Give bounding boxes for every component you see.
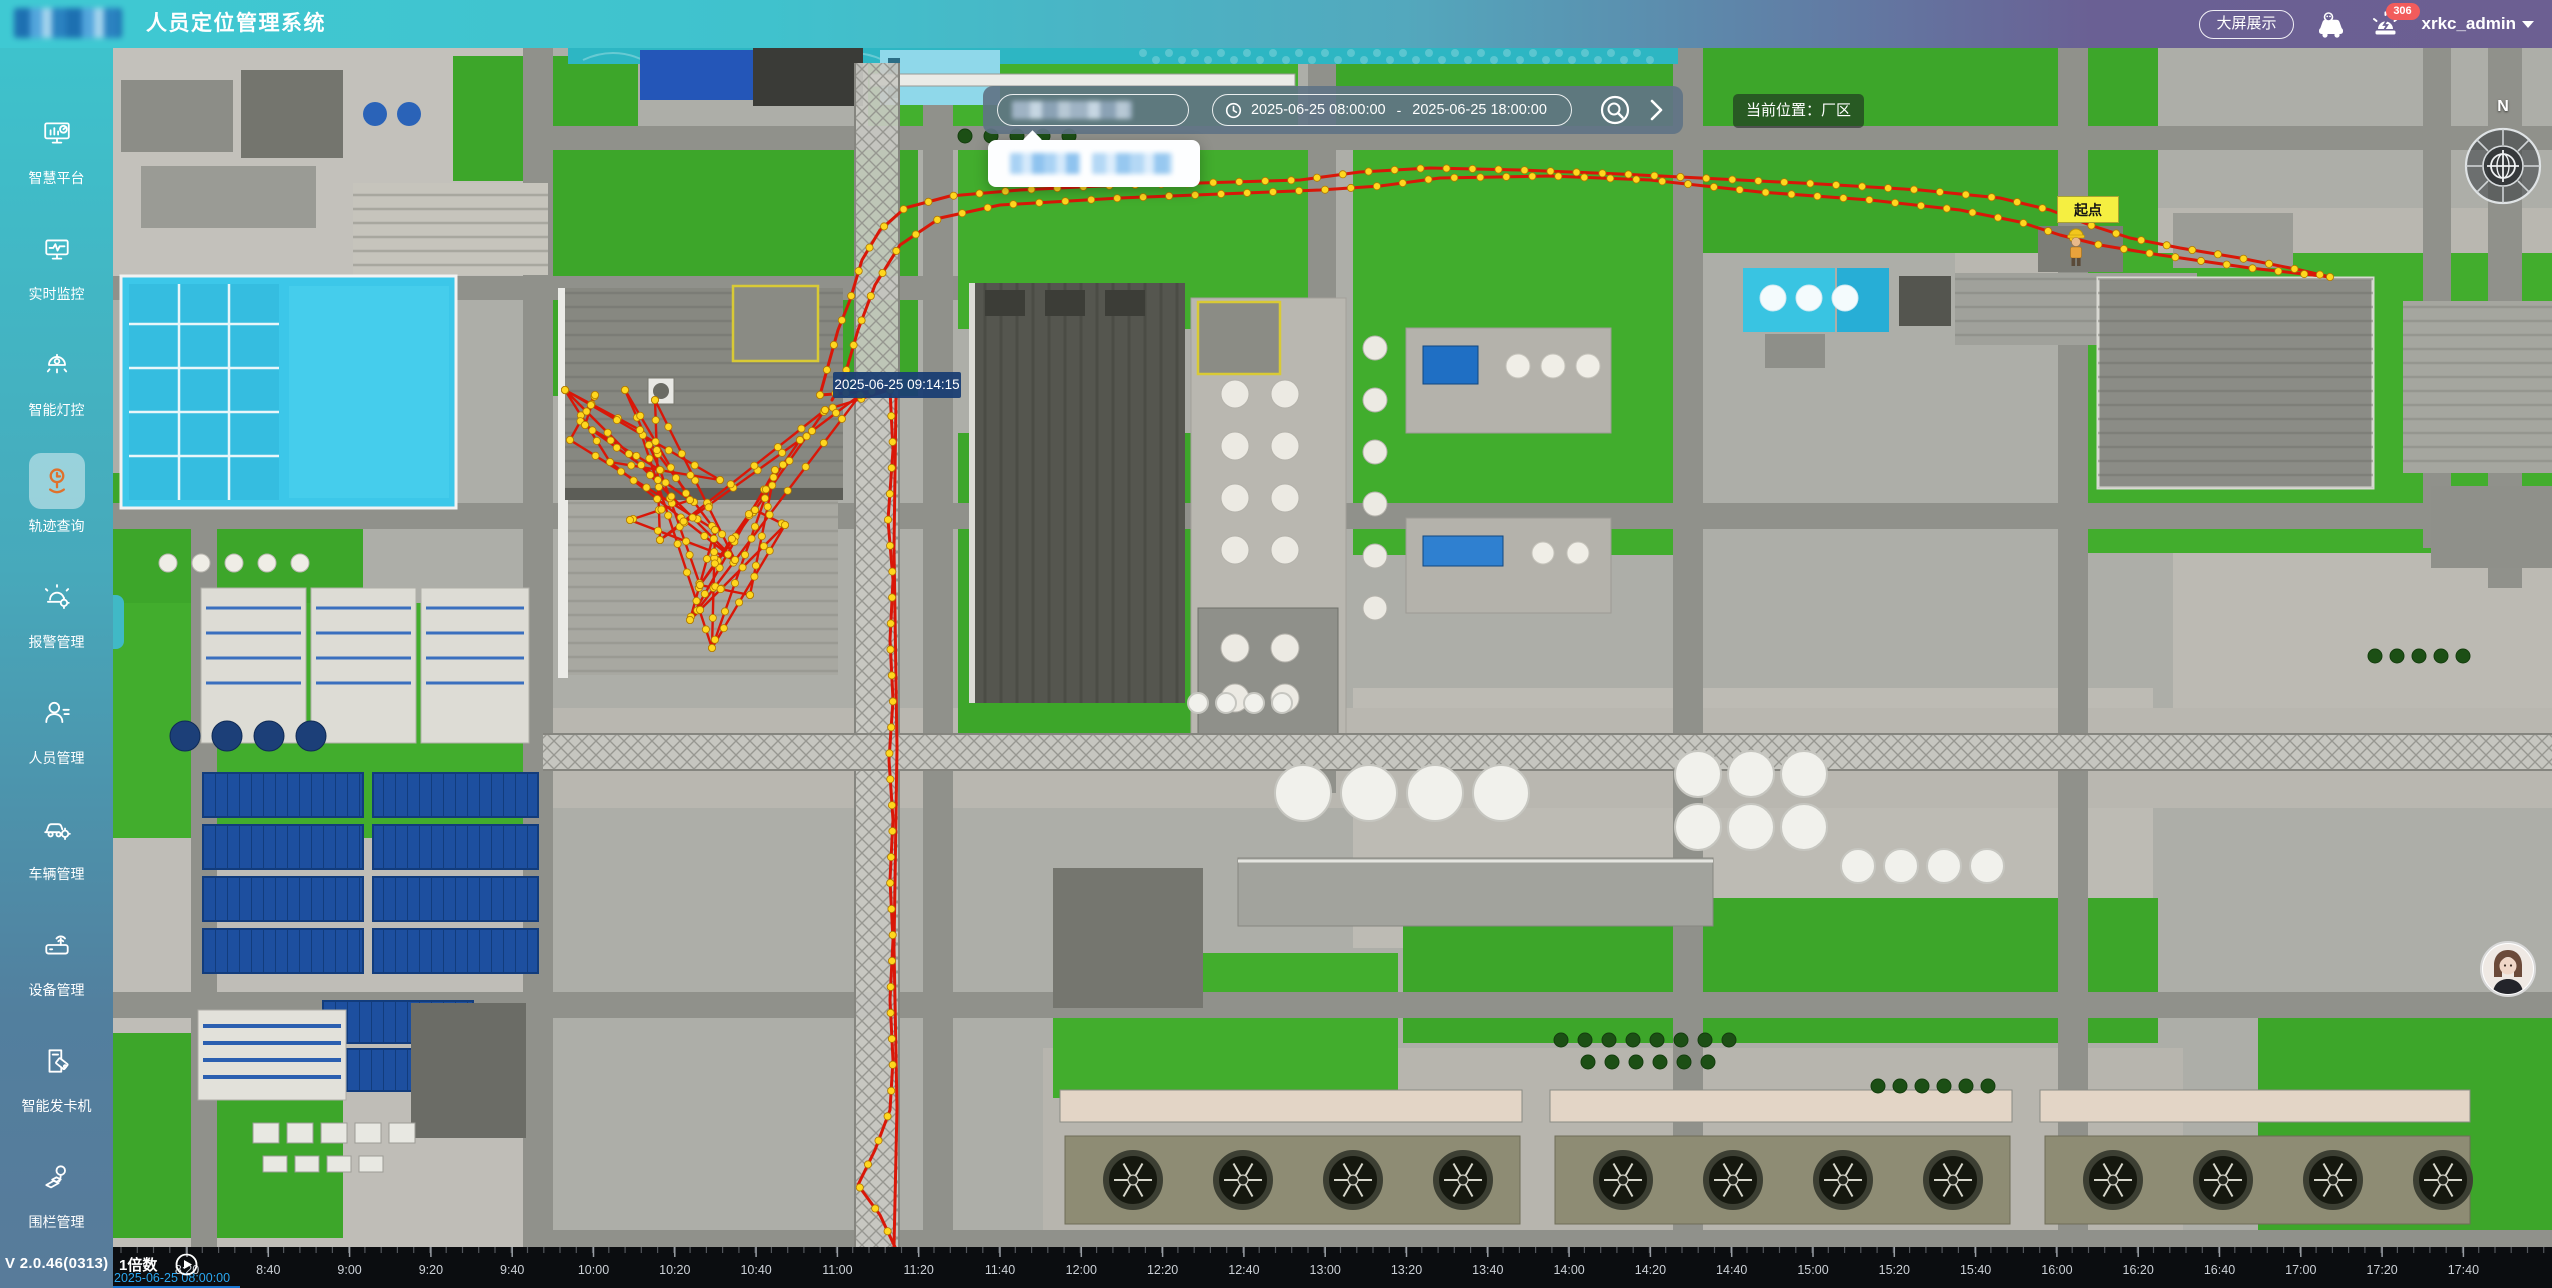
sidebar-item-fence-manage[interactable]: 围栏管理 (0, 1132, 113, 1248)
sidebar-item-personnel-manage[interactable]: 人员管理 (0, 668, 113, 784)
svg-text:13:20: 13:20 (1391, 1263, 1422, 1277)
dark-building-b (969, 283, 1185, 703)
search-suggestion-dropdown[interactable] (988, 140, 1200, 187)
big-screen-button[interactable]: 大屏展示 (2199, 10, 2293, 39)
svg-text:15:00: 15:00 (1797, 1263, 1828, 1277)
svg-text:16:00: 16:00 (2041, 1263, 2072, 1277)
cyan-unit-e (1743, 268, 1951, 368)
svg-text:15:20: 15:20 (1879, 1263, 1910, 1277)
device-manage-icon (42, 930, 72, 960)
app-root: 人员定位管理系统 大屏展示 (0, 0, 2552, 1288)
locate-search-button[interactable] (1599, 94, 1631, 126)
pool (121, 276, 456, 508)
search-input[interactable] (997, 94, 1189, 126)
cooling-fans (1060, 1090, 2470, 1224)
svg-text:17:20: 17:20 (2366, 1263, 2397, 1277)
fence-manage-icon (42, 1162, 72, 1192)
warehouse-a (558, 286, 843, 678)
svg-text:9:20: 9:20 (419, 1263, 443, 1277)
sidebar-item-device-manage[interactable]: 设备管理 (0, 900, 113, 1016)
header-actions: 大屏展示 306 (2199, 0, 2534, 48)
svg-text:14:40: 14:40 (1716, 1263, 1747, 1277)
chevron-down-icon (2522, 21, 2534, 28)
svg-text:11:40: 11:40 (985, 1263, 1015, 1277)
user-menu[interactable]: xrkc_admin (2422, 14, 2535, 34)
sidebar-item-vehicle-manage[interactable]: 车辆管理 (0, 784, 113, 900)
svg-text:11:20: 11:20 (904, 1263, 934, 1277)
svg-text:14:20: 14:20 (1635, 1263, 1666, 1277)
map-base-art (113, 48, 2552, 1247)
personnel-manage-icon (42, 698, 72, 728)
header-bar: 人员定位管理系统 大屏展示 (0, 0, 2552, 48)
svg-text:13:00: 13:00 (1310, 1263, 1341, 1277)
redacted-search-text (1012, 101, 1132, 119)
play-button[interactable] (175, 1253, 198, 1281)
sidebar-nav: 智慧平台 实时监控 智能灯控 轨迹查询 (0, 48, 113, 1288)
speed-multiplier[interactable]: 1倍数 (119, 1254, 157, 1275)
svg-text:12:00: 12:00 (1066, 1263, 1097, 1277)
track-time-tooltip: 2025-06-25 09:14:15 (833, 372, 961, 398)
date-range-picker[interactable]: 2025-06-25 08:00:00 - 2025-06-25 18:00:0… (1212, 94, 1572, 126)
svg-text:8:40: 8:40 (256, 1263, 280, 1277)
svg-text:17:00: 17:00 (2285, 1263, 2316, 1277)
sidebar-item-card-dispenser[interactable]: 智能发卡机 (0, 1016, 113, 1132)
sidebar-item-track-query[interactable]: 轨迹查询 (0, 436, 113, 552)
app-version: V 2.0.46(0313) (5, 1255, 108, 1272)
svg-text:14:00: 14:00 (1553, 1263, 1584, 1277)
clock-icon (1225, 102, 1242, 119)
sidebar-item-realtime-monitor[interactable]: 实时监控 (0, 204, 113, 320)
card-dispenser-icon (42, 1046, 72, 1076)
redacted-tag (1010, 153, 1080, 174)
person-avatar-marker[interactable] (2479, 940, 2537, 998)
svg-text:16:20: 16:20 (2123, 1263, 2154, 1277)
svg-text:10:00: 10:00 (578, 1263, 609, 1277)
date-end: 2025-06-25 18:00:00 (1412, 102, 1547, 118)
redacted-tag (1092, 153, 1172, 174)
svg-text:9:00: 9:00 (337, 1263, 361, 1277)
chevron-right-icon (1646, 97, 1666, 123)
vehicle-monitor-icon[interactable] (2314, 7, 2348, 41)
vehicle-manage-icon (42, 814, 72, 844)
svg-text:17:40: 17:40 (2448, 1263, 2479, 1277)
alarm-manage-icon (42, 582, 72, 612)
svg-text:13:40: 13:40 (1472, 1263, 1503, 1277)
sidebar-collapse-handle[interactable] (113, 595, 124, 649)
smart-light-icon (42, 350, 72, 380)
page-title: 人员定位管理系统 (146, 0, 326, 48)
alarm-icon[interactable]: 306 (2368, 7, 2402, 41)
username: xrkc_admin (2422, 14, 2517, 34)
current-location-badge: 当前位置：厂区 (1733, 94, 1864, 128)
target-search-icon (1599, 94, 1631, 126)
worker-marker[interactable] (2061, 226, 2091, 273)
start-point-label: 起点 (2057, 196, 2119, 223)
date-start: 2025-06-25 08:00:00 (1251, 102, 1386, 118)
sidebar-item-alarm-manage[interactable]: 报警管理 (0, 552, 113, 668)
svg-text:12:20: 12:20 (1147, 1263, 1178, 1277)
compass[interactable]: N (2453, 98, 2552, 213)
svg-text:10:20: 10:20 (659, 1263, 690, 1277)
smart-platform-icon (42, 118, 72, 148)
play-track-button[interactable] (1644, 94, 1669, 126)
svg-text:10:40: 10:40 (740, 1263, 771, 1277)
map-canvas[interactable]: 2025-06-25 08:00:00 - 2025-06-25 18:00:0… (113, 48, 2552, 1247)
date-separator: - (1395, 102, 1404, 118)
compass-north-label: N (2453, 98, 2552, 116)
company-logo (14, 8, 122, 38)
alarm-count-badge: 306 (2386, 3, 2420, 20)
realtime-monitor-icon (42, 234, 72, 264)
timeline-ruler: 8:208:409:009:209:4010:0010:2010:4011:00… (113, 1247, 2552, 1288)
svg-text:9:40: 9:40 (500, 1263, 524, 1277)
search-toolbar: 2025-06-25 08:00:00 - 2025-06-25 18:00:0… (983, 86, 1683, 134)
svg-text:16:40: 16:40 (2204, 1263, 2235, 1277)
svg-text:11:00: 11:00 (822, 1263, 852, 1277)
sidebar-item-smart-light[interactable]: 智能灯控 (0, 320, 113, 436)
sidebar-item-smart-platform[interactable]: 智慧平台 (0, 88, 113, 204)
svg-text:12:40: 12:40 (1228, 1263, 1259, 1277)
track-query-icon (41, 465, 73, 497)
svg-text:15:40: 15:40 (1960, 1263, 1991, 1277)
playback-timeline[interactable]: 8:208:409:009:209:4010:0010:2010:4011:00… (113, 1247, 2552, 1288)
